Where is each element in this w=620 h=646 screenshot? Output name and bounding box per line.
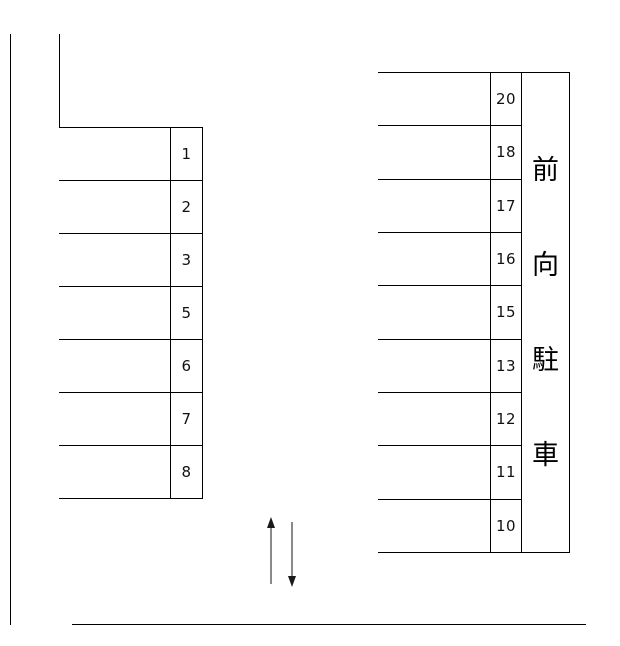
traffic-direction-arrows (258, 512, 306, 592)
parking-space-row: 1 (59, 128, 203, 181)
space-number: 11 (490, 446, 522, 498)
space-number: 5 (170, 287, 203, 339)
parking-space (378, 73, 490, 125)
parking-space-row: 5 (59, 287, 203, 340)
parking-space-row: 16 (378, 233, 522, 286)
parking-space-row: 2 (59, 181, 203, 234)
parking-space (59, 446, 170, 498)
top-left-wall-line (59, 34, 60, 127)
parking-space (378, 286, 490, 338)
parking-space (378, 340, 490, 392)
parking-lot-diagram: 1235678 201817161513121110 前向駐車 (0, 0, 620, 646)
side-label-char: 車 (532, 442, 559, 469)
parking-space-row: 7 (59, 393, 203, 446)
parking-space-row: 20 (378, 73, 522, 126)
parking-space (59, 393, 170, 445)
parking-space (378, 446, 490, 498)
parking-space-row: 12 (378, 393, 522, 446)
parking-block-left: 1235678 (59, 127, 203, 499)
arrow-up-icon (267, 517, 275, 584)
parking-space (59, 128, 170, 180)
side-label-char: 前 (532, 157, 559, 184)
space-number: 12 (490, 393, 522, 445)
parking-space-row: 3 (59, 234, 203, 287)
parking-space (59, 234, 170, 286)
parking-space (378, 233, 490, 285)
space-number: 7 (170, 393, 203, 445)
parking-space (59, 181, 170, 233)
parking-space (378, 180, 490, 232)
parking-space-row: 11 (378, 446, 522, 499)
side-label-char: 駐 (532, 347, 559, 374)
parking-space-row: 15 (378, 286, 522, 339)
space-number: 17 (490, 180, 522, 232)
parking-space (378, 393, 490, 445)
parking-space (378, 500, 490, 552)
space-number: 20 (490, 73, 522, 125)
space-number: 15 (490, 286, 522, 338)
side-label-char: 向 (532, 252, 559, 279)
space-number: 18 (490, 126, 522, 178)
parking-space-row: 6 (59, 340, 203, 393)
space-number: 10 (490, 500, 522, 552)
parking-space (59, 340, 170, 392)
parking-space (59, 287, 170, 339)
space-number: 2 (170, 181, 203, 233)
space-number: 1 (170, 128, 203, 180)
arrow-down-icon (288, 522, 296, 587)
parking-space-row: 17 (378, 180, 522, 233)
boundary-line-left (10, 34, 11, 625)
parking-space (378, 126, 490, 178)
space-number: 8 (170, 446, 203, 498)
parking-space-row: 18 (378, 126, 522, 179)
front-facing-parking-label: 前向駐車 (522, 72, 570, 553)
space-number: 16 (490, 233, 522, 285)
space-number: 3 (170, 234, 203, 286)
parking-space-row: 13 (378, 340, 522, 393)
space-number: 6 (170, 340, 203, 392)
parking-block-right: 201817161513121110 (378, 72, 522, 553)
boundary-line-bottom (72, 624, 586, 625)
parking-space-row: 8 (59, 446, 203, 499)
space-number: 13 (490, 340, 522, 392)
parking-space-row: 10 (378, 500, 522, 553)
